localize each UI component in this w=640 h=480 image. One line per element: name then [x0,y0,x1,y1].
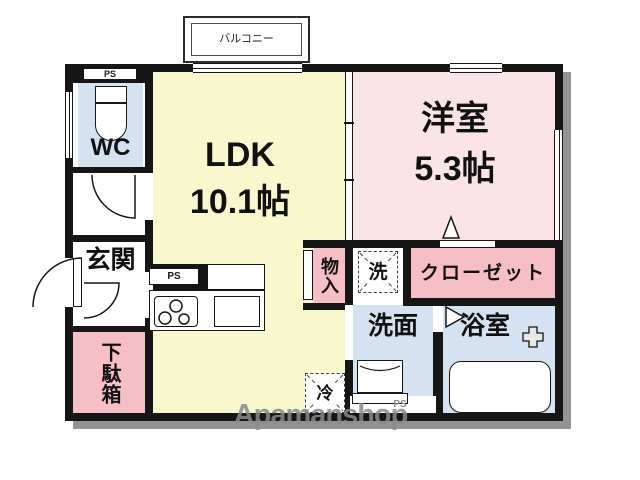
western-top-window [450,63,502,73]
wall-hall-entrance [73,235,145,242]
ldk-label: LDK [150,134,330,176]
western-room-label: 洋室 [355,97,555,141]
wall-closet-left [403,240,411,306]
kitchen-counter-top [207,264,265,290]
ldk-balcony-window [193,63,302,73]
balcony-label: バルコニー [219,34,274,45]
storage-label: 物入 [313,249,345,302]
ldk-size-label: 10.1帖 [150,181,330,223]
washer-name: 洗 [368,263,387,282]
wall-entrance-shoebox [73,326,145,332]
ldk-name: LDK [205,138,275,172]
western-right-window [554,130,563,240]
wall-left-column [145,72,153,413]
closet-sliding-door [440,240,495,248]
entrance-name: 玄関 [85,248,135,273]
shoe-box-name: 下駄箱 [99,342,119,405]
door-gap-entrance-exterior [65,258,73,307]
partition-tick-1 [344,122,354,124]
western-name: 洋室 [421,102,489,136]
watermark-text: Apamanshop [234,399,408,432]
window-sash-line [69,92,70,158]
window-sash-line [193,68,302,69]
apamanshop-watermark: Apamanshop [228,399,413,431]
western-size: 5.3帖 [414,152,495,186]
wc-name: WC [91,136,131,160]
bathtub [449,361,551,413]
closet-name: クローゼット [420,264,546,283]
washroom-label: 洗面 [353,309,433,343]
washbasin [357,360,403,393]
shoe-box-label: 下駄箱 [73,334,145,412]
wall-middle-top-band [303,240,563,248]
stove [154,296,198,327]
door-gap-washroom [345,305,353,360]
pipe-space-top-left: PS [82,67,138,81]
storage-door-leaf [303,250,313,300]
bathroom-label: 浴室 [440,309,530,343]
washer-space-label: 洗 [366,261,390,283]
partition-tick-2 [344,179,354,181]
wall-closet-bottom [403,298,563,306]
washroom-name: 洗面 [368,314,418,339]
window-sash-line [450,68,502,69]
ps-label: PS [167,272,180,282]
bathroom-name: 浴室 [460,314,510,339]
pipe-space-kitchen: PS [149,268,199,285]
balcony: バルコニー [191,23,302,56]
wall-wc-hall [73,167,145,173]
toilet-tank [95,86,127,103]
closet-label: クローゼット [411,251,555,295]
wc-label: WC [78,134,143,162]
partition-ldk-western [345,72,353,240]
storage-name: 物入 [320,257,338,295]
entrance-label: 玄関 [78,245,143,275]
floorplan-canvas: バルコニー PS [0,0,640,480]
ps-label: PS [104,70,116,79]
western-room-size-label: 5.3帖 [355,147,555,191]
wc-left-window [65,92,73,158]
window-sash-line [559,130,560,240]
ldk-size: 10.1帖 [190,185,290,219]
kitchen-sink [214,296,260,327]
